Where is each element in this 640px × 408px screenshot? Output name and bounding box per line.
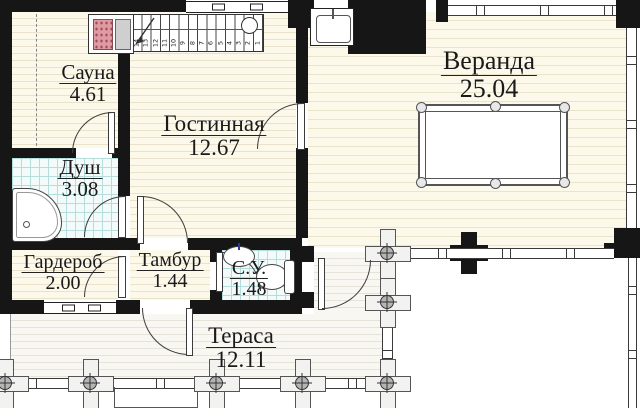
counter xyxy=(310,8,354,46)
post-circle xyxy=(83,376,97,390)
post-circle xyxy=(380,295,394,309)
east-edge-railing xyxy=(628,258,637,408)
floor-terrace xyxy=(10,314,386,380)
floor-plan: 1413121110987654321 Сауна 4. xyxy=(0,0,640,408)
stair-landing-circle xyxy=(241,17,258,34)
door-leaf xyxy=(186,308,193,356)
wall-east-pier-bottom xyxy=(302,292,314,308)
room-label-tambur: Тамбур 1.44 xyxy=(137,250,204,292)
sauna-heater-icon xyxy=(88,14,134,54)
room-area: 1.48 xyxy=(230,279,268,299)
window-tick xyxy=(88,305,101,312)
room-name: Гардероб xyxy=(22,252,105,273)
billiard-table-icon xyxy=(418,104,568,186)
faucet-icon xyxy=(238,243,240,250)
wall-bottom-left xyxy=(0,300,44,314)
billiard-pocket xyxy=(490,178,501,189)
billiard-pocket xyxy=(490,101,501,112)
corner-post-ne xyxy=(616,0,640,28)
wall-bottom-right xyxy=(190,300,302,314)
post-circle xyxy=(380,376,394,390)
room-label-gostinnaya: Гостинная 12.67 xyxy=(161,112,266,160)
window-icon xyxy=(44,302,116,314)
wall-east-pier-top xyxy=(302,246,314,262)
room-area: 12.11 xyxy=(206,348,276,371)
post-circle xyxy=(380,246,394,260)
room-area: 2.00 xyxy=(22,273,105,293)
room-name: Душ xyxy=(58,157,103,179)
room-label-su: С.У. 1.48 xyxy=(230,258,268,300)
terrace-step xyxy=(114,387,198,408)
sauna-bench-line xyxy=(12,14,37,146)
wall-top-left xyxy=(0,0,186,12)
window-tick xyxy=(250,4,263,11)
shower-tray-inner xyxy=(16,192,58,238)
heater-stones xyxy=(93,19,113,50)
wall-living-veranda-bottom xyxy=(296,148,308,238)
room-area: 4.61 xyxy=(59,84,116,105)
window-icon xyxy=(186,1,288,13)
wall-living-veranda-top xyxy=(296,12,308,103)
billiard-pocket xyxy=(559,177,570,188)
room-name: Гостинная xyxy=(161,112,266,136)
chimney-stub xyxy=(436,0,448,22)
post-circle xyxy=(209,376,223,390)
post-circle xyxy=(295,376,309,390)
room-label-sauna: Сауна 4.61 xyxy=(59,62,116,106)
billiard-pocket xyxy=(559,102,570,113)
room-label-dush: Душ 3.08 xyxy=(58,157,103,201)
billiard-pocket xyxy=(416,177,427,188)
wall-sauna-right xyxy=(118,40,130,196)
room-label-garderob: Гардероб 2.00 xyxy=(22,252,105,294)
veranda-right-railing xyxy=(626,28,637,228)
room-name: Тераса xyxy=(206,324,276,348)
room-label-terasa: Тераса 12.11 xyxy=(206,324,276,372)
fireplace-icon xyxy=(348,0,426,54)
veranda-top-railing xyxy=(448,5,616,16)
room-name: Веранда xyxy=(441,48,537,76)
room-name: Сауна xyxy=(59,62,116,84)
room-name: Тамбур xyxy=(137,250,204,271)
heater-body xyxy=(115,19,131,50)
room-label-veranda: Веранда 25.04 xyxy=(441,48,537,102)
toilet-tank xyxy=(284,260,295,294)
wall-bottom-mid xyxy=(116,300,140,314)
stair-step-number: 1 xyxy=(250,38,264,47)
kitchen-sink-icon xyxy=(316,15,351,43)
billiard-table-felt xyxy=(425,111,561,179)
faucet-icon xyxy=(332,9,334,19)
room-name: С.У. xyxy=(230,258,268,279)
veranda-bottom-railing xyxy=(410,248,614,259)
window-tick xyxy=(62,305,75,312)
room-area: 3.08 xyxy=(58,179,103,200)
room-area: 25.04 xyxy=(441,76,537,103)
window-tick xyxy=(212,4,225,11)
billiard-pocket xyxy=(416,102,427,113)
room-area: 1.44 xyxy=(137,271,204,291)
room-area: 12.67 xyxy=(161,136,266,159)
drain-icon xyxy=(23,221,30,228)
